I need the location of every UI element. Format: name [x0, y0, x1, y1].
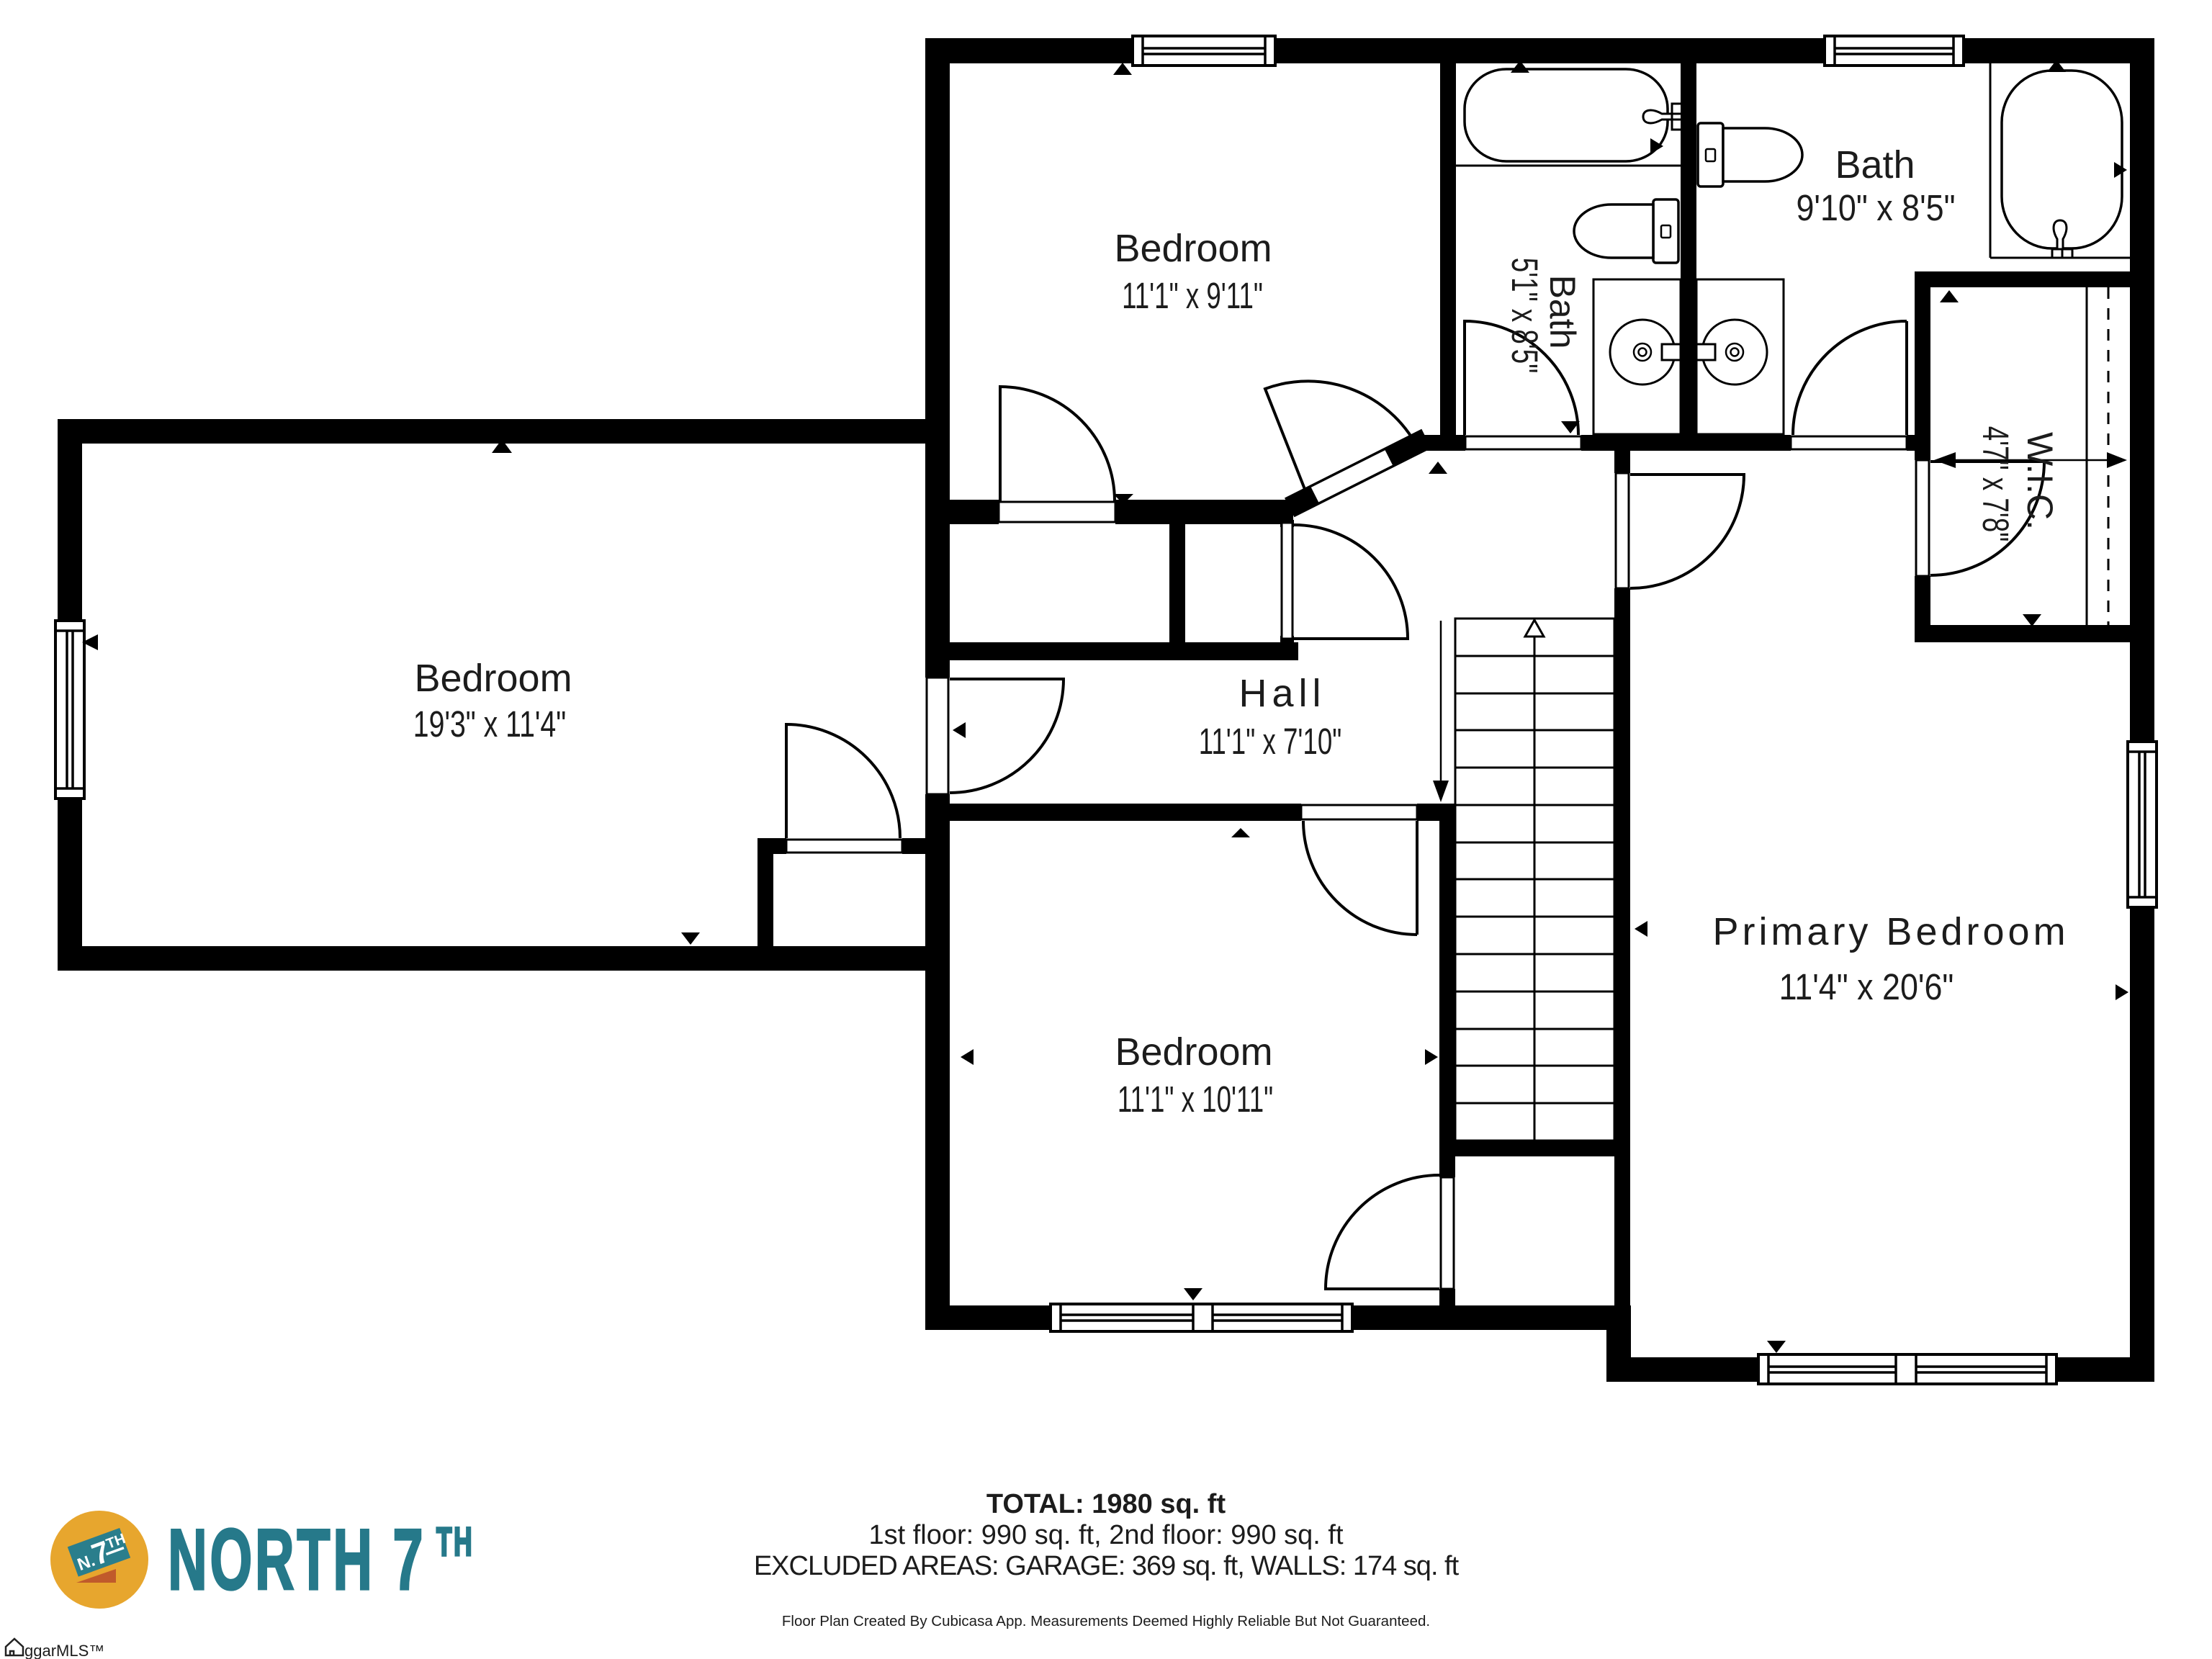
svg-text:Bath: Bath — [1835, 143, 1915, 186]
svg-text:5'1" x 8'5": 5'1" x 8'5" — [1504, 258, 1545, 373]
svg-text:Bedroom: Bedroom — [1115, 1030, 1272, 1074]
svg-text:ggarMLS™: ggarMLS™ — [24, 1642, 104, 1659]
svg-text:11'1" x 7'10": 11'1" x 7'10" — [1199, 721, 1342, 762]
svg-text:Floor Plan Created By Cubicasa: Floor Plan Created By Cubicasa App. Meas… — [782, 1613, 1430, 1629]
svg-text:19'3" x 11'4": 19'3" x 11'4" — [413, 703, 566, 745]
svg-text:9'10" x 8'5": 9'10" x 8'5" — [1796, 188, 1955, 228]
svg-text:Primary Bedroom: Primary Bedroom — [1712, 910, 2069, 953]
svg-text:4'7" x 7'8": 4'7" x 7'8" — [1975, 426, 2015, 541]
svg-text:NORTH 7: NORTH 7 — [168, 1511, 426, 1608]
svg-text:Bedroom: Bedroom — [1114, 227, 1272, 270]
svg-text:11'1" x 10'11": 11'1" x 10'11" — [1118, 1079, 1273, 1120]
svg-text:Hall: Hall — [1238, 672, 1326, 715]
svg-text:W.I.C.: W.I.C. — [2020, 432, 2060, 530]
svg-text:Bedroom: Bedroom — [414, 657, 572, 700]
svg-text:TOTAL: 1980 sq. ft: TOTAL: 1980 sq. ft — [986, 1489, 1226, 1519]
svg-text:11'1" x 9'11": 11'1" x 9'11" — [1122, 276, 1263, 316]
svg-text:EXCLUDED AREAS: GARAGE: 369 sq: EXCLUDED AREAS: GARAGE: 369 sq. ft, WALL… — [754, 1551, 1460, 1581]
svg-text:Bath: Bath — [1542, 275, 1583, 349]
svg-text:TH: TH — [436, 1519, 474, 1564]
svg-text:11'4" x 20'6": 11'4" x 20'6" — [1779, 967, 1954, 1007]
svg-text:1st floor: 990 sq. ft, 2nd flo: 1st floor: 990 sq. ft, 2nd floor: 990 sq… — [868, 1520, 1343, 1550]
